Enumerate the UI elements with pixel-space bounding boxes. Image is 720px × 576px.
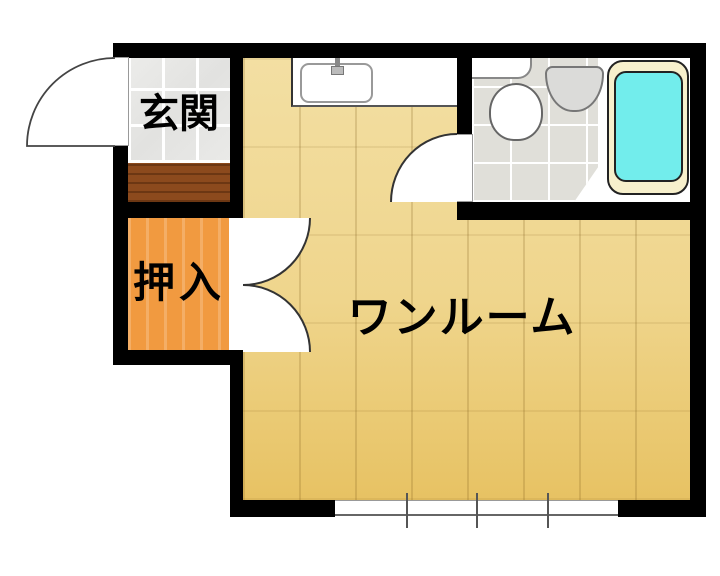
closet-label: 押入: [128, 218, 230, 340]
floor-plan: 玄関 押入 ワンルーム: [0, 0, 720, 576]
entrance-label: 玄関: [128, 57, 230, 163]
entrance-door-swing: [27, 58, 115, 146]
closet-door-top-swing: [243, 218, 310, 285]
main-room-label: ワンルーム: [337, 288, 587, 338]
closet-door-bottom-swing: [243, 285, 310, 352]
bathroom-door-swing: [391, 134, 457, 202]
